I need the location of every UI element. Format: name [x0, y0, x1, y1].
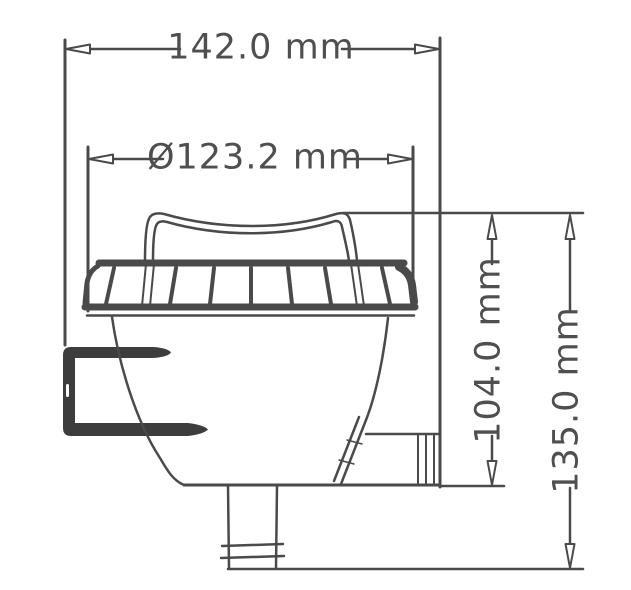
arrowhead-up-icon — [488, 215, 497, 239]
arrowhead-right-icon — [415, 45, 439, 54]
bottom-spout-barb — [221, 486, 284, 568]
vessel-body — [112, 317, 440, 485]
arrowhead-up-icon — [566, 215, 575, 239]
carry-handle — [145, 213, 357, 261]
cap-ribs — [106, 268, 390, 304]
body-right-wall — [366, 318, 388, 420]
side-outlet-barb — [366, 432, 440, 486]
body-left-wall — [112, 317, 184, 485]
spout-left-edge — [228, 486, 229, 568]
arrowhead-down-icon — [488, 461, 497, 485]
bracket-shape — [63, 347, 208, 436]
arrowhead-right-icon — [388, 155, 412, 164]
spout-ridge-2 — [221, 556, 284, 558]
technical-drawing-canvas: 142.0 mm Ø123.2 mm 104.0 mm 135.0 mm — [0, 0, 631, 590]
dim-label-body-height: 104.0 mm — [472, 256, 507, 444]
dim-label-overall-width: 142.0 mm — [167, 31, 355, 66]
mounting-bracket — [63, 347, 208, 436]
strainer-drawing — [0, 0, 631, 590]
arrowhead-left-icon — [89, 155, 113, 164]
dim-label-lid-diameter: Ø123.2 mm — [147, 141, 363, 176]
bracket-highlight — [66, 384, 69, 397]
arrowhead-down-icon — [566, 544, 575, 568]
lid-cap — [85, 263, 415, 316]
dim-label-overall-height: 135.0 mm — [550, 306, 585, 494]
arrowhead-left-icon — [66, 45, 90, 54]
spout-ridge-1 — [222, 544, 283, 546]
handle-outer — [145, 213, 357, 261]
